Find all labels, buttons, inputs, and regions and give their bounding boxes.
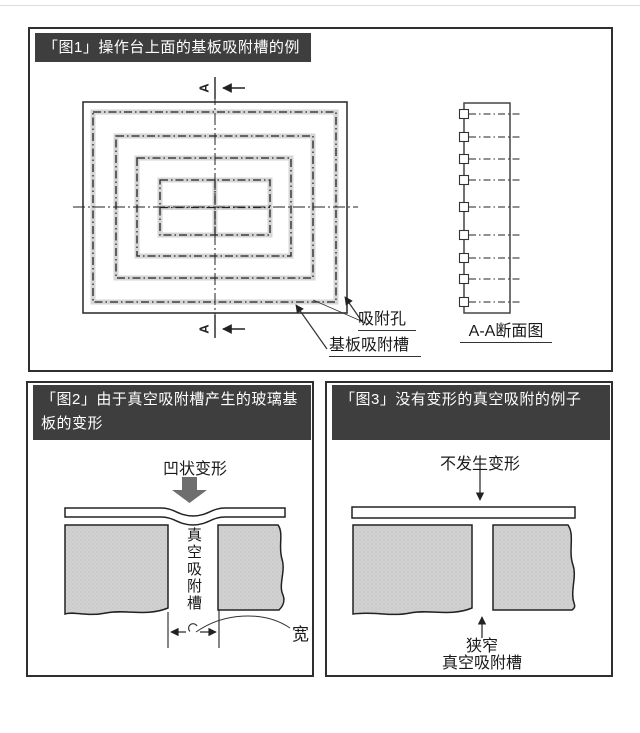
chuck-block-right: [493, 525, 575, 610]
section-view-label: A-A断面图: [460, 317, 552, 343]
width-label: 宽: [292, 620, 309, 645]
figure2-drawing: [28, 383, 312, 675]
chuck-block-left: [353, 525, 472, 614]
figure-sheet: 「图1」操作台上面的基板吸附槽的例子: [0, 0, 640, 733]
suction-hole-label: 吸附孔: [358, 305, 416, 331]
section-cut-mark-bottom: A: [197, 315, 246, 338]
figure3-panel: 「图3」没有变形的真空吸附的例子 不发生变形: [325, 381, 613, 677]
glass-substrate-sagging: [65, 508, 285, 525]
section-view-strip: [460, 103, 523, 313]
deformation-arrow-icon: [172, 477, 207, 503]
page-top-divider: [0, 5, 640, 6]
vacuum-groove-label: 真空吸附槽: [427, 649, 537, 673]
glass-substrate-flat: [352, 507, 575, 518]
section-letter-top: A: [197, 83, 212, 93]
suction-hole-squares: [460, 110, 469, 307]
section-cut-mark-top: A: [197, 77, 246, 99]
chuck-block-right: [218, 525, 284, 610]
concave-deformation-label: 凹状变形: [155, 455, 235, 479]
figure1-panel: 「图1」操作台上面的基板吸附槽的例子: [28, 27, 613, 372]
figure2-panel: 「图2」由于真空吸附槽产生的玻璃基板的变形: [26, 381, 314, 677]
width-dimension: [168, 610, 290, 648]
chuck-block-left: [65, 525, 168, 614]
vacuum-groove-label-vertical: 真空吸附槽: [184, 527, 202, 615]
substrate-groove-label: 基板吸附槽: [329, 331, 421, 357]
section-letter-bottom: A: [197, 324, 212, 334]
no-deformation-label: 不发生变形: [430, 450, 530, 474]
